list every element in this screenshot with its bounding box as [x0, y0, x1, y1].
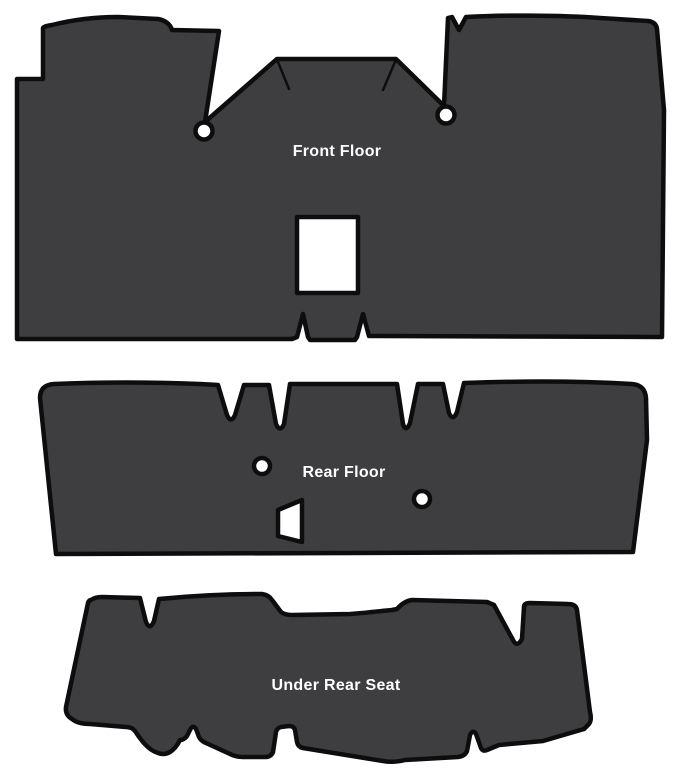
front-floor-label: Front Floor: [293, 143, 382, 160]
front-floor-piece: Front Floor: [17, 16, 664, 340]
front-floor-grommet-hole-right: [438, 107, 455, 124]
kit-diagram-canvas: Front Floor Rear Floor Under Rear Seat: [0, 0, 680, 783]
rear-floor-label: Rear Floor: [302, 464, 385, 481]
under-rear-seat-label: Under Rear Seat: [272, 677, 401, 694]
under-rear-seat-piece: Under Rear Seat: [66, 594, 591, 762]
front-floor-shifter-hole: [297, 217, 358, 293]
front-floor-grommet-hole-left: [196, 123, 213, 140]
rear-floor-wedge-hole: [278, 500, 302, 542]
rear-floor-grommet-hole-right: [414, 491, 430, 507]
rear-floor-piece: Rear Floor: [40, 382, 647, 554]
floor-kit-diagram: Front Floor Rear Floor Under Rear Seat: [0, 0, 680, 783]
rear-floor-grommet-hole-left: [254, 458, 270, 474]
